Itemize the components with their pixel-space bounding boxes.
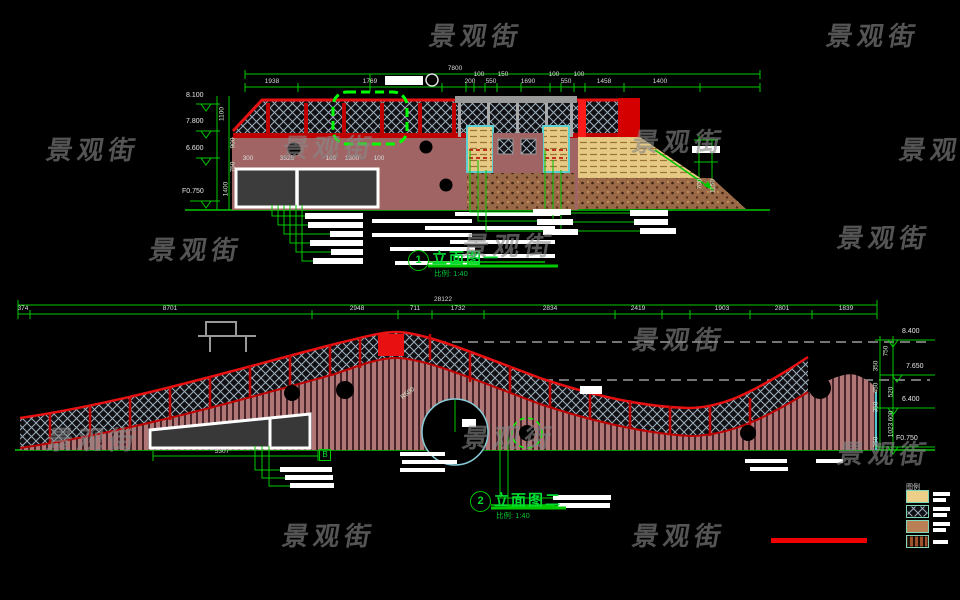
scale-bar-red — [771, 538, 867, 543]
level-label: 7.650 — [906, 363, 924, 370]
dim-label-vertical: 1023 — [888, 423, 895, 437]
drawing-number-bubble: 2 — [470, 491, 491, 512]
dim-label: 374 — [18, 305, 29, 312]
cad-sheet: 景观街 景观街 景观街 景观街 景观街 景观街 景观街 景观街 景观街 景观街 … — [0, 0, 960, 600]
wall-hole — [288, 143, 301, 156]
wall-hole — [519, 425, 535, 441]
wall-hole — [420, 141, 433, 154]
legend-label-bar — [933, 492, 950, 496]
legend-swatch-speckle — [906, 520, 929, 533]
drawing-scale: 比例: 1:40 — [496, 510, 530, 521]
dim-label: 550 — [561, 78, 572, 85]
drawing-scale: 比例: 1:40 — [434, 268, 468, 279]
dim-label: 1938 — [265, 78, 279, 85]
dim-label: 1400 — [653, 78, 667, 85]
dim-label: 2948 — [350, 305, 364, 312]
blank-label-tag — [385, 76, 423, 85]
dim-label: 200 — [465, 78, 476, 85]
dim-total-1: 7800 — [448, 65, 462, 72]
dim-label-vertical: 900 — [230, 138, 237, 149]
level-label: F0.750 — [182, 188, 204, 195]
drawing-number-bubble: 1 — [408, 250, 429, 271]
dim-label: 1839 — [839, 305, 853, 312]
wall-hole — [809, 377, 831, 399]
legend-label-bar — [933, 498, 946, 502]
dim-label-vertical: 350 — [873, 437, 880, 448]
pergola-2 — [198, 322, 256, 352]
drawing-title: 立面图二 — [494, 489, 562, 510]
dim-label: 5307 — [215, 448, 229, 455]
planter-group — [467, 126, 575, 210]
legend-swatch-lattice — [906, 505, 929, 518]
level-label: 8.100 — [186, 92, 204, 99]
level-label: F0.750 — [896, 435, 918, 442]
dim-label-vertical: 750 — [230, 162, 237, 173]
dim-label: 300 — [243, 155, 254, 162]
dim-label: 150 — [498, 71, 509, 78]
dim-label: 1732 — [451, 305, 465, 312]
dim-label: 100 — [474, 71, 485, 78]
railing-band-1 — [233, 96, 640, 139]
dim-label-vertical: 350 — [873, 361, 880, 372]
drawing-title: 立面图一 — [432, 247, 500, 268]
planting-soil — [467, 173, 575, 210]
level-tag — [692, 146, 706, 153]
legend-swatch-stripes — [906, 535, 929, 548]
dim-label: 100 — [574, 71, 585, 78]
elevation-2 — [15, 300, 935, 508]
elevation-1 — [185, 70, 770, 266]
dim-label-vertical: 1150 — [710, 179, 717, 193]
wall-hole — [440, 179, 453, 192]
dim-label: 1690 — [521, 78, 535, 85]
dim-label: 2419 — [631, 305, 645, 312]
dim-label-vertical: 600 — [888, 411, 895, 422]
dim-label: 1769 — [363, 78, 377, 85]
level-label: 7.800 — [186, 118, 204, 125]
level-label: 6.600 — [186, 145, 204, 152]
dim-label: 2801 — [775, 305, 789, 312]
dim-label: 100 — [326, 155, 337, 162]
dim-label-vertical: 450 — [873, 383, 880, 394]
dim-label-vertical: 1400 — [223, 182, 230, 196]
dim-label: 100 — [549, 71, 560, 78]
crest-red-panel — [378, 334, 404, 356]
railing-end-post — [618, 98, 640, 139]
dim-label-vertical: 350 — [873, 402, 880, 413]
legend-label-bar — [933, 540, 948, 544]
dim-label: 100 — [374, 155, 385, 162]
dim-label: 8701 — [163, 305, 177, 312]
detail-bubble-icon — [426, 74, 438, 86]
dim-label-vertical: 700 — [697, 179, 704, 190]
legend-label-bar — [933, 513, 947, 517]
legend-label-bar — [933, 507, 950, 511]
section-marker-b: B — [319, 449, 331, 461]
dim-label-vertical: 750 — [883, 346, 890, 357]
dim-label: 2834 — [543, 305, 557, 312]
dim-label: 1300 — [345, 155, 359, 162]
dim-label-vertical: 520 — [888, 387, 895, 398]
wall-hole — [284, 385, 300, 401]
embankment-slope — [578, 137, 746, 209]
level-label: 6.400 — [902, 396, 920, 403]
wall-hole — [336, 381, 354, 399]
dim-label: 3525 — [280, 155, 294, 162]
dim-label: 550 — [486, 78, 497, 85]
legend-label-bar — [933, 528, 946, 532]
dim-label-vertical: 1100 — [219, 107, 226, 121]
level-label: 8.400 — [902, 328, 920, 335]
pergola-beam — [455, 96, 577, 103]
dim-label: 711 — [410, 305, 420, 312]
window-band — [236, 169, 378, 207]
level-tag — [706, 146, 720, 153]
legend-label-bar — [933, 522, 950, 526]
dim-label: 1458 — [597, 78, 611, 85]
legend-swatch-tan — [906, 490, 929, 503]
dim-label: 1903 — [715, 305, 729, 312]
dim-total-2: 28122 — [434, 296, 452, 303]
wall-hole — [740, 425, 756, 441]
